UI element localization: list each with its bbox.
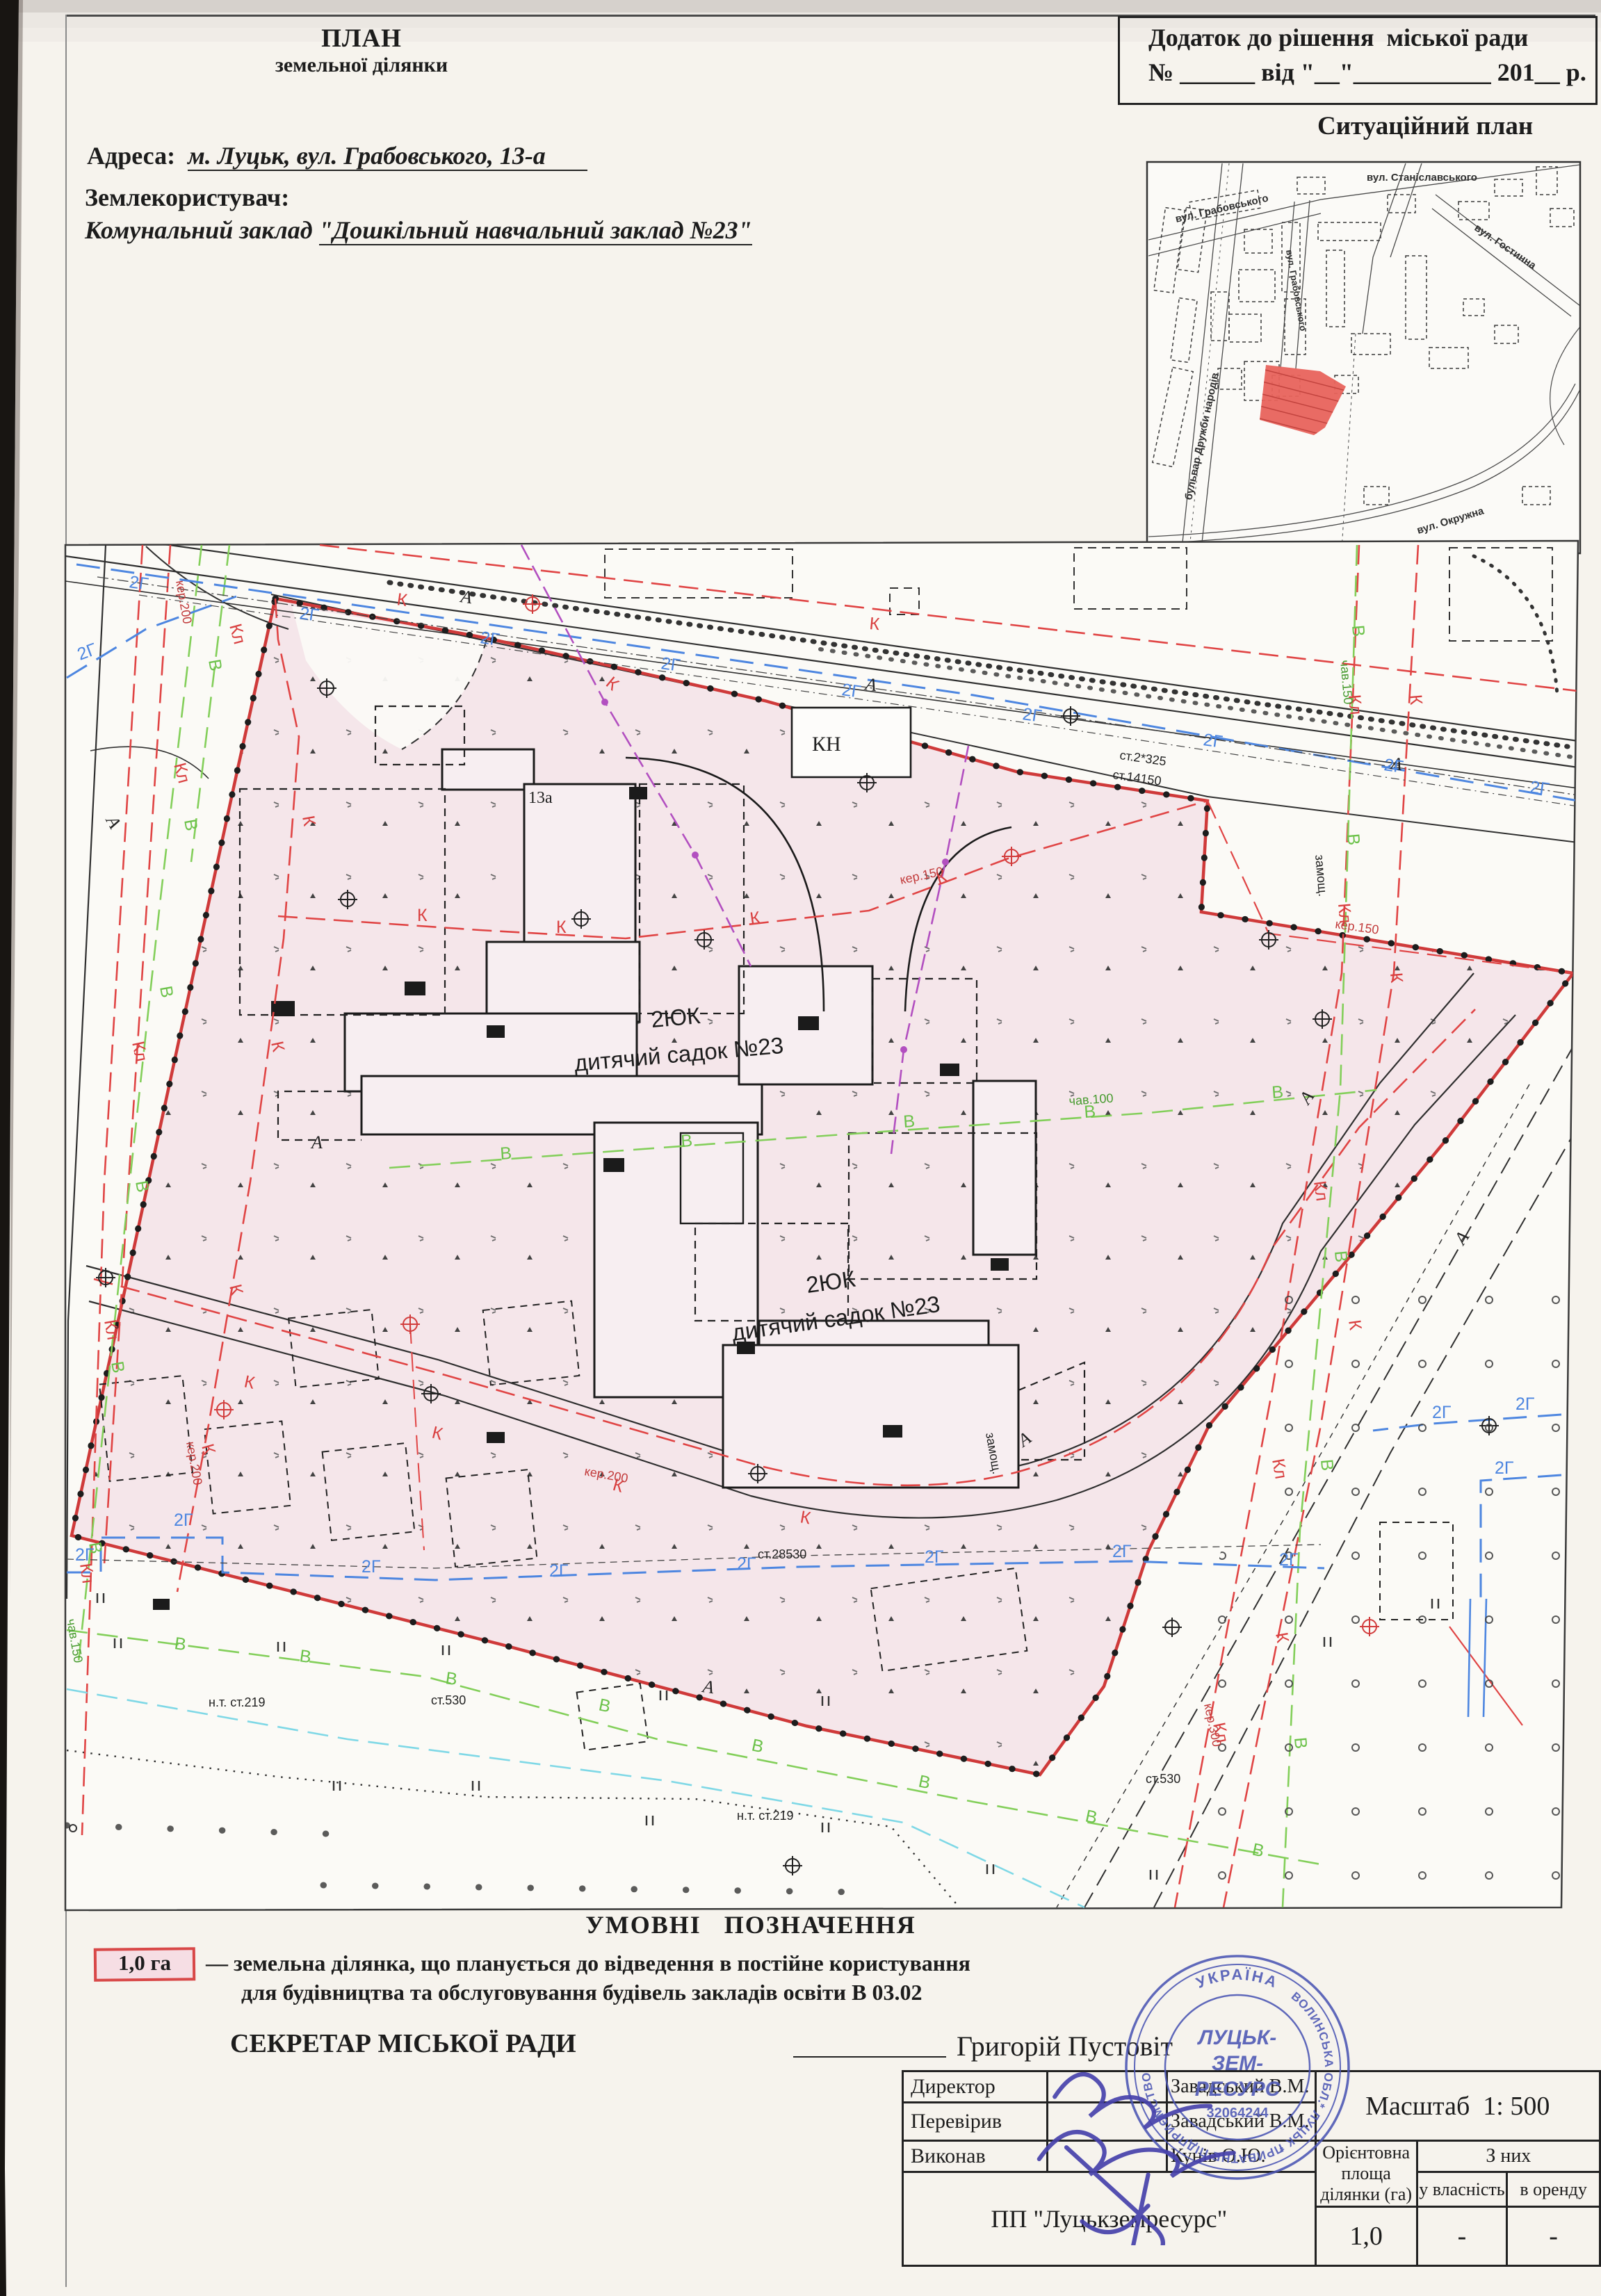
svg-text:В: В [499, 1143, 512, 1164]
svg-text:ВОЛИНСЬКА ОБЛ.: ВОЛИНСЬКА ОБЛ. [1289, 1989, 1335, 2107]
svg-text:К: К [417, 906, 428, 925]
svg-text:2Г: 2Г [1432, 1403, 1452, 1422]
svg-text:13а: 13а [528, 789, 553, 807]
svg-text:2Г: 2Г [1112, 1542, 1132, 1561]
svg-text:Кл: Кл [1310, 1180, 1332, 1203]
svg-text:2Г: 2Г [479, 628, 501, 650]
svg-text:Кл: Кл [1268, 1457, 1291, 1481]
svg-text:2Г: 2Г [1021, 704, 1043, 726]
svg-text:2Г: 2Г [737, 1554, 756, 1574]
svg-text:2Г: 2Г [840, 680, 863, 702]
svg-text:2Г: 2Г [174, 1511, 193, 1530]
svg-text:К: К [1406, 694, 1426, 706]
svg-text:КН: КН [812, 733, 841, 756]
svg-text:н.т. ст.219: н.т. ст.219 [737, 1809, 793, 1823]
svg-text:* ЛУЦЬК *: * ЛУЦЬК * [1275, 2100, 1327, 2155]
svg-text:В: В [1317, 1458, 1337, 1472]
svg-text:2ЮК: 2ЮК [650, 1002, 702, 1032]
svg-text:В: В [1290, 1736, 1310, 1750]
svg-text:2Г: 2Г [1202, 730, 1224, 752]
svg-text:2Г: 2Г [1383, 755, 1405, 777]
svg-text:2Г: 2Г [1515, 1394, 1535, 1414]
svg-text:2Г: 2Г [1529, 777, 1551, 799]
svg-text:2Г: 2Г [361, 1557, 381, 1577]
svg-text:Кл: Кл [76, 1562, 98, 1585]
svg-text:В: В [1348, 624, 1368, 637]
svg-text:В: В [1331, 1250, 1351, 1263]
svg-text:Кл: Кл [100, 1318, 123, 1342]
svg-text:2Г: 2Г [1279, 1550, 1299, 1570]
svg-text:н.т. ст.219: н.т. ст.219 [209, 1695, 265, 1709]
svg-text:2Г: 2Г [75, 1545, 95, 1565]
svg-text:К: К [1386, 972, 1406, 984]
svg-text:К: К [556, 918, 567, 937]
svg-text:Кл: Кл [128, 1039, 151, 1063]
svg-text:ст.530: ст.530 [1146, 1772, 1180, 1786]
svg-text:2Г: 2Г [925, 1547, 944, 1567]
svg-text:2Г: 2Г [128, 572, 150, 594]
svg-text:2Г: 2Г [549, 1561, 569, 1581]
svg-text:ст.530: ст.530 [431, 1693, 466, 1707]
svg-text:2Г: 2Г [660, 653, 682, 676]
svg-text:В: В [1271, 1082, 1284, 1102]
svg-text:В: В [680, 1131, 693, 1151]
svg-text:ст.28530: ст.28530 [758, 1547, 806, 1561]
svg-text:В: В [902, 1112, 916, 1132]
svg-text:2Г: 2Г [298, 603, 320, 626]
svg-text:В: В [1343, 833, 1363, 846]
svg-text:вул. Станіславського: вул. Станіславського [1367, 172, 1477, 184]
svg-text:2Г: 2Г [1495, 1458, 1514, 1478]
svg-text:К: К [868, 614, 880, 634]
svg-text:А: А [310, 1132, 323, 1153]
